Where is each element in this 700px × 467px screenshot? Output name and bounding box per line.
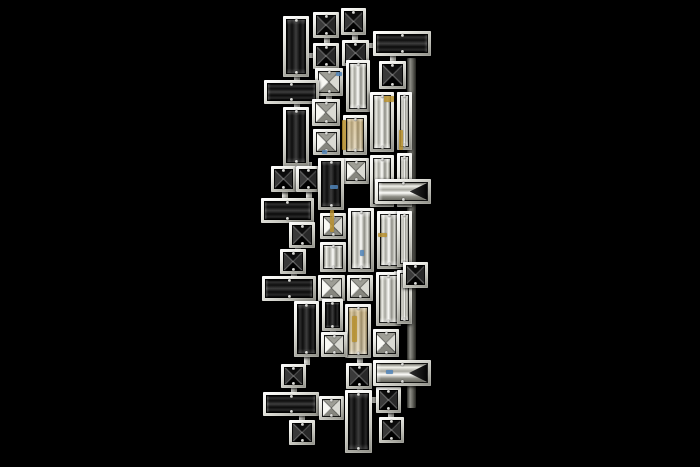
crystal-clear-v bbox=[346, 60, 370, 112]
crystal-facet bbox=[346, 161, 366, 181]
crystal-dark-x bbox=[379, 61, 406, 89]
pin-dot bbox=[403, 318, 406, 321]
reflection-accent bbox=[360, 250, 364, 256]
crystal-facet bbox=[349, 63, 367, 109]
pin-dot bbox=[381, 158, 384, 161]
pin-dot bbox=[358, 366, 361, 369]
pin-dot bbox=[403, 144, 406, 147]
pin-dot bbox=[401, 363, 404, 366]
pin-dot bbox=[352, 11, 355, 14]
pin-dot bbox=[388, 214, 391, 217]
crystal-facet bbox=[346, 118, 364, 152]
crystal-dark-x bbox=[296, 166, 320, 192]
pin-dot bbox=[357, 106, 360, 109]
crystal-facet bbox=[348, 393, 369, 450]
pin-dot bbox=[282, 186, 285, 189]
crystal-dark-h bbox=[263, 392, 319, 416]
pin-dot bbox=[325, 132, 328, 135]
pin-dot bbox=[401, 50, 404, 53]
pin-dot bbox=[385, 351, 388, 354]
pin-dot bbox=[290, 410, 293, 413]
crystal-dark-h bbox=[262, 276, 316, 301]
pin-dot bbox=[387, 407, 390, 410]
pin-dot bbox=[328, 90, 331, 93]
pin-dot bbox=[332, 245, 335, 248]
pin-dot bbox=[401, 34, 404, 37]
crystal-dark-v bbox=[318, 158, 344, 210]
pin-dot bbox=[295, 160, 298, 163]
crystal-dark-x bbox=[341, 8, 366, 35]
reflection-accent bbox=[330, 185, 338, 189]
pin-dot bbox=[292, 367, 295, 370]
pin-dot bbox=[355, 161, 358, 164]
pin-dot bbox=[305, 304, 308, 307]
pin-dot bbox=[288, 279, 291, 282]
pin-dot bbox=[331, 325, 334, 328]
crystal-facet bbox=[382, 420, 401, 440]
crystal-facet bbox=[324, 335, 344, 354]
pin-dot bbox=[387, 390, 390, 393]
pin-dot bbox=[330, 399, 333, 402]
pin-dot bbox=[286, 217, 289, 220]
reflection-accent bbox=[322, 150, 327, 154]
crystal-amber-v bbox=[343, 115, 367, 155]
pin-dot bbox=[354, 149, 357, 152]
pin-dot bbox=[359, 295, 362, 298]
sconce-photo bbox=[0, 0, 700, 467]
pin-dot bbox=[402, 198, 405, 201]
pin-dot bbox=[330, 161, 333, 164]
crystal-facet bbox=[299, 169, 317, 189]
crystal-facet bbox=[266, 395, 316, 413]
pin-dot bbox=[295, 110, 298, 113]
pin-dot bbox=[325, 32, 328, 35]
crystal-facet bbox=[400, 214, 409, 264]
crystal-dark-v bbox=[322, 299, 343, 331]
pin-dot bbox=[307, 169, 310, 172]
pin-dot bbox=[358, 383, 361, 386]
crystal-facet bbox=[264, 201, 311, 220]
crystal-clear-x bbox=[319, 396, 344, 420]
pin-dot bbox=[325, 15, 328, 18]
reflection-accent bbox=[384, 96, 394, 102]
pin-dot bbox=[360, 266, 363, 269]
pin-dot bbox=[301, 439, 304, 442]
pin-dot bbox=[414, 282, 417, 285]
pin-dot bbox=[330, 295, 333, 298]
pin-dot bbox=[360, 211, 363, 214]
crystal-facet bbox=[274, 169, 293, 189]
crystal-facet bbox=[316, 15, 336, 35]
crystal-facet bbox=[373, 95, 391, 149]
crystal-facet bbox=[316, 132, 337, 152]
pin-dot bbox=[325, 102, 328, 105]
pin-dot bbox=[282, 169, 285, 172]
pin-dot bbox=[390, 420, 393, 423]
crystal-facet bbox=[286, 110, 306, 163]
crystal-facet bbox=[286, 19, 306, 74]
pin-dot bbox=[301, 225, 304, 228]
crystal-clear-x bbox=[321, 332, 347, 357]
crystal-clear-h-de bbox=[375, 179, 431, 204]
crystal-facet bbox=[379, 275, 398, 323]
crystal-facet bbox=[283, 252, 303, 271]
pin-dot bbox=[292, 382, 295, 385]
crystal-facet bbox=[284, 367, 303, 385]
crystal-facet bbox=[297, 304, 316, 354]
crystal-clear-v bbox=[397, 211, 412, 267]
crystal-dark-x bbox=[313, 12, 339, 38]
crystal-facet bbox=[376, 34, 428, 53]
crystal-facet bbox=[292, 423, 312, 442]
pin-dot bbox=[357, 63, 360, 66]
reflection-accent bbox=[352, 316, 357, 342]
pin-dot bbox=[305, 351, 308, 354]
crystal-facet bbox=[315, 102, 337, 123]
pin-dot bbox=[402, 182, 405, 185]
pin-dot bbox=[333, 351, 336, 354]
pin-dot bbox=[354, 43, 357, 46]
pin-dot bbox=[354, 118, 357, 121]
pin-dot bbox=[414, 265, 417, 268]
crystal-dark-x bbox=[281, 364, 306, 388]
crystal-dark-x bbox=[280, 249, 306, 274]
pin-dot bbox=[286, 201, 289, 204]
crystal-facet bbox=[349, 366, 369, 386]
pin-dot bbox=[290, 83, 293, 86]
pin-dot bbox=[401, 380, 404, 383]
crystal-dark-x bbox=[313, 43, 339, 69]
pin-dot bbox=[359, 278, 362, 281]
crystal-facet bbox=[267, 83, 316, 101]
crystal-dark-x bbox=[271, 166, 296, 192]
reflection-accent bbox=[378, 233, 387, 237]
crystal-dark-x bbox=[289, 222, 315, 248]
crystal-dark-h bbox=[264, 80, 319, 104]
crystal-facet bbox=[325, 302, 340, 328]
crystal-dark-v bbox=[294, 301, 319, 357]
crystal-facet bbox=[316, 46, 336, 66]
pin-dot bbox=[295, 19, 298, 22]
crystal-facet bbox=[265, 279, 313, 298]
crystal-dark-v bbox=[283, 107, 309, 166]
pin-dot bbox=[385, 332, 388, 335]
pin-dot bbox=[330, 278, 333, 281]
pin-dot bbox=[403, 214, 406, 217]
pin-dot bbox=[388, 263, 391, 266]
pin-dot bbox=[330, 204, 333, 207]
crystal-facet bbox=[379, 390, 398, 410]
pin-dot bbox=[301, 242, 304, 245]
pin-dot bbox=[290, 395, 293, 398]
crystal-dark-x bbox=[403, 262, 428, 288]
pin-dot bbox=[352, 29, 355, 32]
crystal-facet bbox=[344, 11, 363, 32]
pin-dot bbox=[325, 120, 328, 123]
pin-dot bbox=[381, 146, 384, 149]
pin-dot bbox=[325, 63, 328, 66]
crystal-facet bbox=[322, 399, 341, 417]
pin-dot bbox=[357, 352, 360, 355]
crystal-dark-h bbox=[373, 31, 431, 56]
crystal-clear-x bbox=[347, 275, 373, 301]
pin-dot bbox=[307, 186, 310, 189]
pin-dot bbox=[355, 178, 358, 181]
crystal-facet bbox=[348, 307, 368, 355]
pin-dot bbox=[403, 95, 406, 98]
crystal-dark-h bbox=[261, 198, 314, 223]
pin-dot bbox=[403, 156, 406, 159]
crystal-clear-v bbox=[320, 242, 346, 272]
pin-dot bbox=[357, 447, 360, 450]
pin-dot bbox=[331, 302, 334, 305]
reflection-accent bbox=[399, 130, 403, 150]
crystal-clear-x bbox=[373, 329, 399, 357]
pin-dot bbox=[387, 320, 390, 323]
crystal-dark-x bbox=[379, 417, 404, 443]
crystal-clear-x bbox=[343, 158, 369, 184]
crystal-dark-v bbox=[345, 390, 372, 453]
crystal-dark-v bbox=[283, 16, 309, 77]
crystal-dark-x bbox=[289, 420, 315, 445]
crystal-facet bbox=[323, 245, 343, 269]
pin-dot bbox=[292, 252, 295, 255]
crystal-clear-h-de bbox=[373, 360, 431, 386]
crystal-clear-v bbox=[348, 208, 374, 272]
crystal-clear-x bbox=[312, 99, 340, 126]
pin-dot bbox=[357, 393, 360, 396]
crystal-amber-v bbox=[345, 304, 371, 358]
pin-dot bbox=[390, 437, 393, 440]
pin-dot bbox=[290, 98, 293, 101]
reflection-accent bbox=[330, 210, 334, 232]
crystal-facet bbox=[376, 332, 396, 354]
pin-dot bbox=[391, 83, 394, 86]
crystal-facet bbox=[406, 265, 425, 285]
crystal-facet bbox=[321, 278, 342, 298]
pin-dot bbox=[301, 423, 304, 426]
reflection-accent bbox=[342, 120, 346, 150]
crystal-dark-x bbox=[376, 387, 401, 413]
pin-dot bbox=[333, 335, 336, 338]
pin-dot bbox=[288, 295, 291, 298]
crystal-facet bbox=[376, 363, 428, 383]
pin-dot bbox=[295, 71, 298, 74]
pin-dot bbox=[391, 64, 394, 67]
pin-dot bbox=[332, 233, 335, 236]
pin-dot bbox=[325, 46, 328, 49]
pin-dot bbox=[357, 307, 360, 310]
crystal-facet bbox=[382, 64, 403, 86]
crystal-facet bbox=[351, 211, 371, 269]
pin-dot bbox=[292, 268, 295, 271]
crystal-facet bbox=[380, 214, 398, 266]
crystal-facet bbox=[378, 182, 428, 201]
reflection-accent bbox=[336, 72, 342, 76]
crystal-facet bbox=[292, 225, 312, 245]
pin-dot bbox=[328, 71, 331, 74]
crystal-clear-x bbox=[318, 275, 345, 301]
pin-dot bbox=[332, 266, 335, 269]
pin-dot bbox=[330, 414, 333, 417]
crystal-facet bbox=[321, 161, 341, 207]
reflection-accent bbox=[386, 370, 393, 374]
crystal-dark-x bbox=[346, 363, 372, 389]
pin-dot bbox=[387, 275, 390, 278]
crystal-facet bbox=[350, 278, 370, 298]
